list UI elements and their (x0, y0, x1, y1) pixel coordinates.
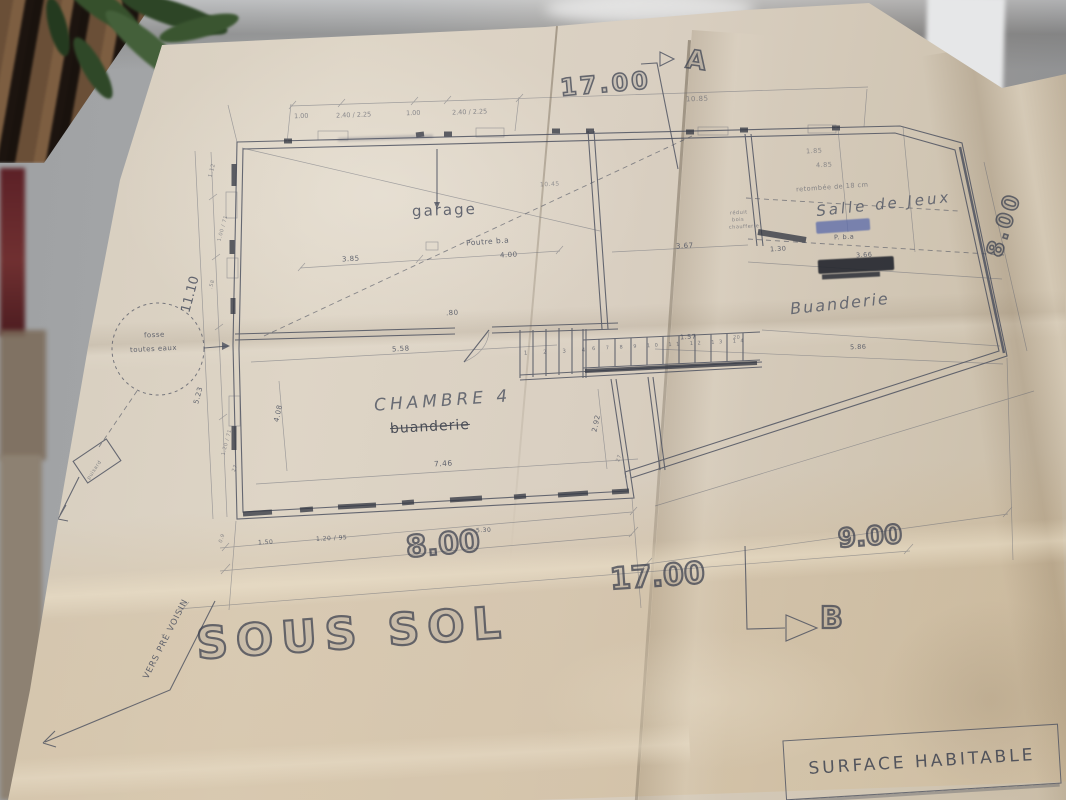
photo-scene: 17.00 A 10.85 1.00 2.40 / 2.25 1.00 2.40… (0, 0, 1066, 800)
dim-big-8: 8.00 (405, 527, 481, 563)
dim-top-2: 2.40 / 2.25 (336, 111, 371, 119)
dim-4-00: 4.00 (500, 252, 518, 260)
dim-top-3: 1.00 (406, 110, 421, 117)
dim-big-17: 17.00 (609, 559, 706, 596)
dim-5-86: 5.86 (850, 344, 867, 351)
blueprint-paper: 17.00 A 10.85 1.00 2.40 / 2.25 1.00 2.40… (0, 0, 1066, 800)
room-garage: garage (412, 202, 477, 219)
dim-17-top: 17.00 (559, 68, 652, 100)
dim-big-9: 9.00 (837, 522, 903, 552)
dim-top-4: 2.40 / 2.25 (452, 108, 487, 116)
dim-door-80: .80 (446, 310, 459, 318)
background-left (0, 330, 46, 460)
dim-1-85: 1.85 (806, 148, 823, 155)
dim-3-85: 3.85 (342, 256, 360, 264)
dim-10-45: 10.45 (540, 182, 560, 189)
reduit-line2: bois (732, 218, 744, 224)
dim-3-67: 3.67 (676, 243, 694, 251)
section-a-label: A (684, 47, 711, 76)
reduit-line1: réduit (730, 211, 748, 217)
surface-habitable-label: SURFACE HABITABLE (808, 747, 1036, 778)
plan-linework-svg (0, 0, 1066, 800)
dim-7-46: 7.46 (434, 460, 453, 468)
dim-4-85: 4.85 (816, 162, 833, 169)
dim-b-150: 1.50 (258, 540, 274, 547)
red-object-left (0, 168, 25, 336)
dim-top-1: 1.00 (294, 113, 309, 120)
room-buanderie-struck: buanderie (390, 418, 471, 436)
fosse-label-1: fosse (144, 331, 165, 339)
dim-10-85: 10.85 (686, 96, 709, 104)
dim-5-58: 5.58 (392, 346, 410, 354)
section-b-label: B (820, 604, 843, 634)
p-ba-label: P. b.a (834, 233, 855, 241)
dim-1-30: 1.30 (770, 246, 787, 253)
dim-3-66: 3.66 (856, 252, 873, 259)
